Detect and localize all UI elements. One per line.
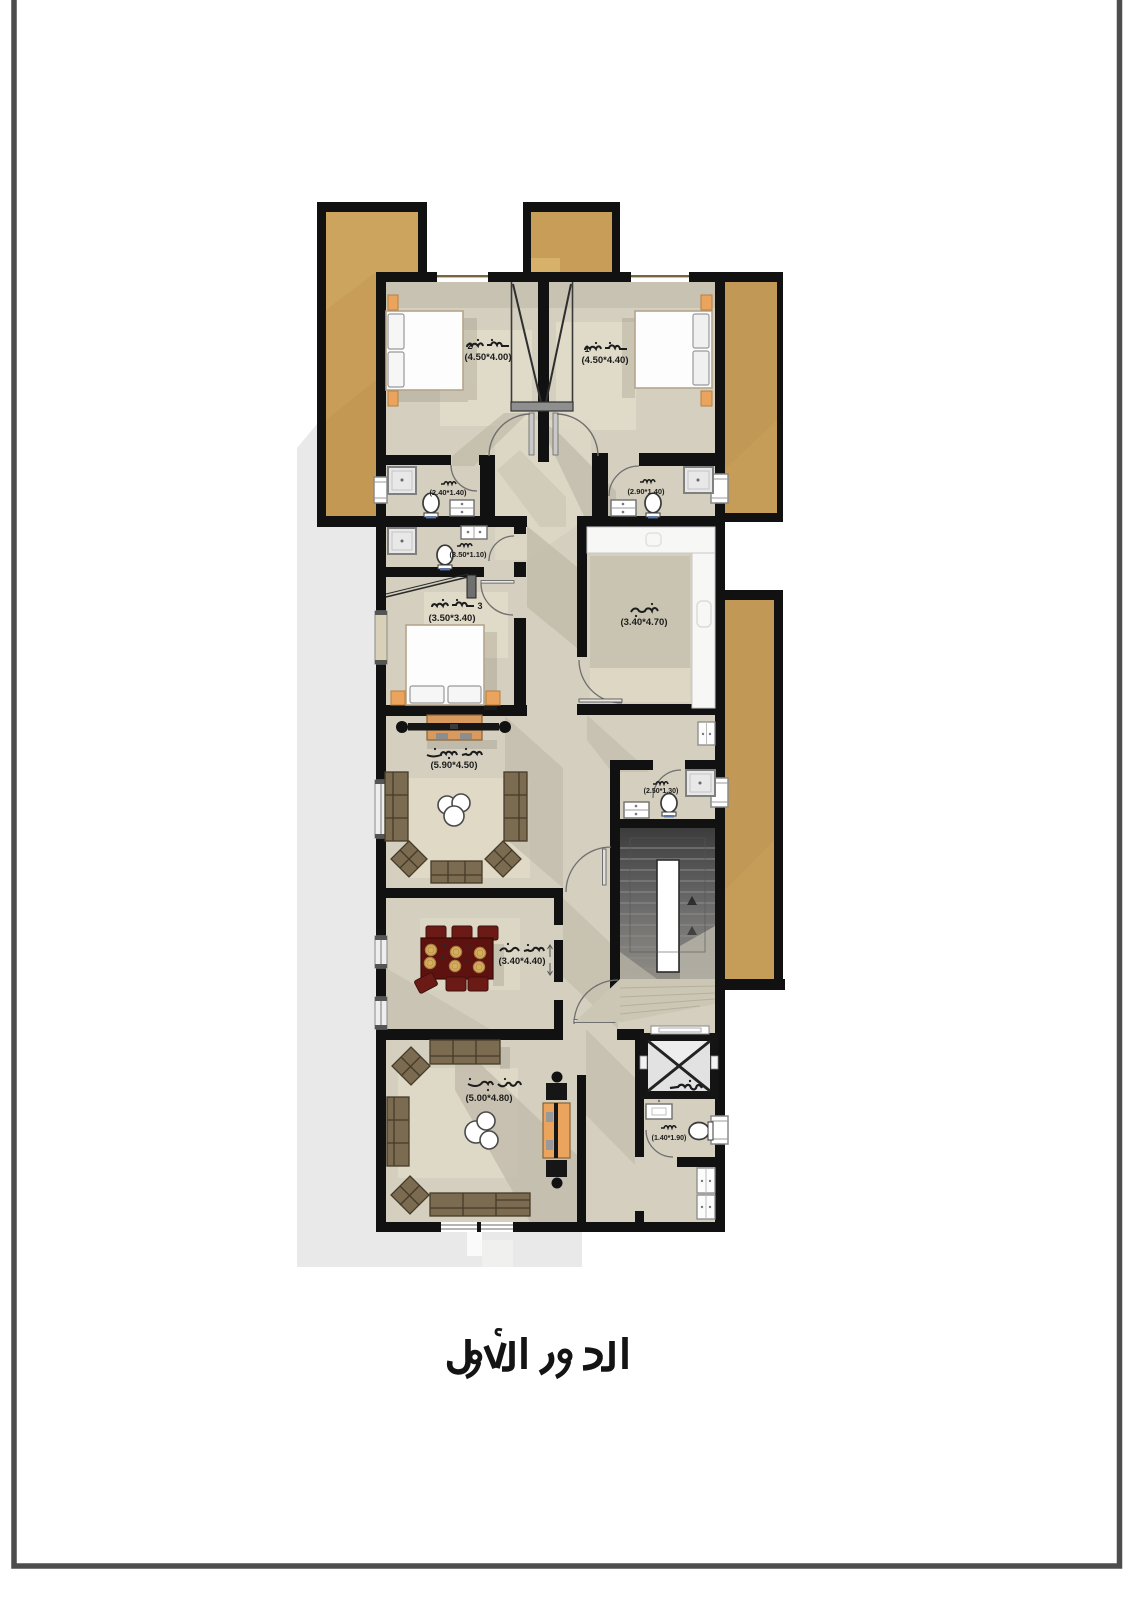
svg-text:2: 2	[467, 341, 472, 351]
svg-text:(4.50*4.00): (4.50*4.00)	[464, 352, 511, 363]
svg-text:(5.00*4.80): (5.00*4.80)	[465, 1093, 512, 1104]
svg-text:(2.90*1.40): (2.90*1.40)	[627, 487, 665, 496]
svg-text:(2.40*1.40): (2.40*1.40)	[429, 488, 467, 497]
svg-text:(3.50*1.10): (3.50*1.10)	[449, 550, 487, 559]
svg-text:(2.50*1.30): (2.50*1.30)	[644, 788, 679, 795]
svg-text:(3.50*3.40): (3.50*3.40)	[428, 613, 475, 624]
svg-text:(3.40*4.70): (3.40*4.70)	[620, 617, 667, 628]
svg-text:(5.90*4.50): (5.90*4.50)	[430, 760, 477, 771]
svg-text:3: 3	[477, 601, 482, 611]
svg-text:(3.40*4.40): (3.40*4.40)	[498, 956, 545, 967]
svg-text:1: 1	[584, 344, 589, 354]
svg-text:(4.50*4.40): (4.50*4.40)	[581, 355, 628, 366]
svg-text:(1.40*1.90): (1.40*1.90)	[652, 1135, 687, 1142]
